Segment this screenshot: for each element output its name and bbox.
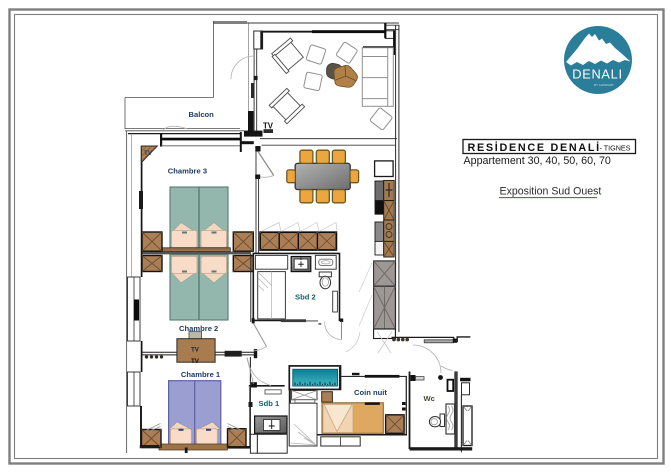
svg-text:Chambre 3: Chambre 3: [168, 166, 207, 175]
svg-text:TV: TV: [144, 150, 153, 157]
svg-text:Appartement 30, 40, 50, 60, 70: Appartement 30, 40, 50, 60, 70: [464, 155, 611, 167]
svg-text:Exposition Sud Ouest: Exposition Sud Ouest: [500, 186, 602, 198]
svg-text:TV: TV: [263, 121, 274, 130]
svg-text:Coin nuit: Coin nuit: [354, 388, 387, 397]
svg-text:RESİDENCE DENALİ: RESİDENCE DENALİ: [468, 141, 601, 154]
svg-text:Balcon: Balcon: [189, 110, 215, 119]
svg-text:Wc: Wc: [424, 394, 435, 403]
svg-text:Sbd 2: Sbd 2: [295, 293, 316, 302]
svg-text:DENALI: DENALI: [572, 66, 622, 81]
svg-text:Chambre 1: Chambre 1: [181, 370, 221, 379]
svg-text:TV: TV: [191, 358, 200, 365]
svg-text:TV: TV: [191, 346, 200, 353]
svg-text:- TIGNES: - TIGNES: [600, 143, 631, 152]
svg-text:Sdb 1: Sdb 1: [259, 399, 280, 408]
svg-text:BY ALPAPART: BY ALPAPART: [594, 83, 614, 87]
